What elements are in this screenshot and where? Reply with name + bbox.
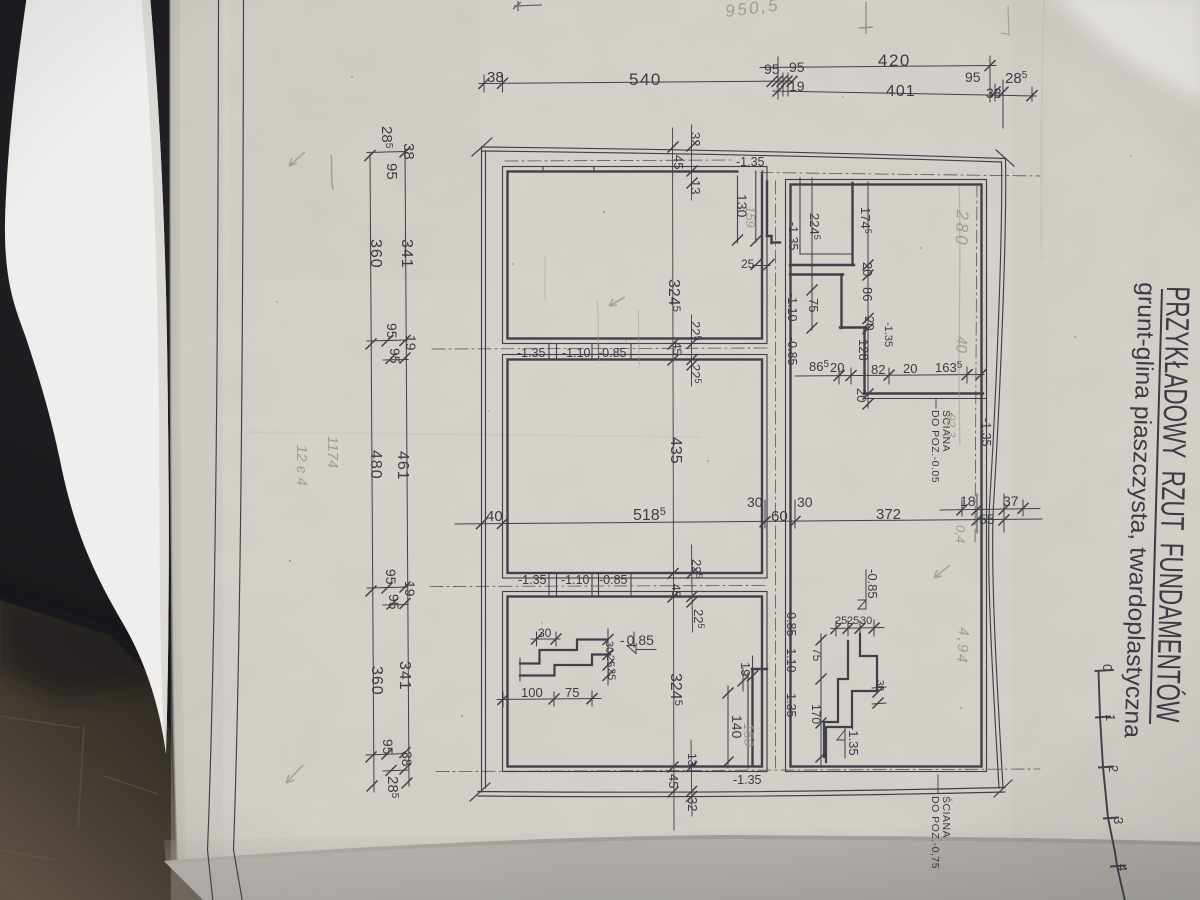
svg-text:1174: 1174 <box>324 436 341 468</box>
svg-text:159: 159 <box>743 206 758 228</box>
svg-text:0,4: 0,4 <box>953 525 968 543</box>
svg-text:4,94: 4,94 <box>953 627 972 665</box>
svg-text:40: 40 <box>952 336 970 354</box>
svg-text:92 3: 92 3 <box>944 414 958 438</box>
svg-text:150: 150 <box>741 723 757 747</box>
svg-text:12 є 4: 12 є 4 <box>293 445 310 486</box>
svg-text:280: 280 <box>952 209 972 248</box>
